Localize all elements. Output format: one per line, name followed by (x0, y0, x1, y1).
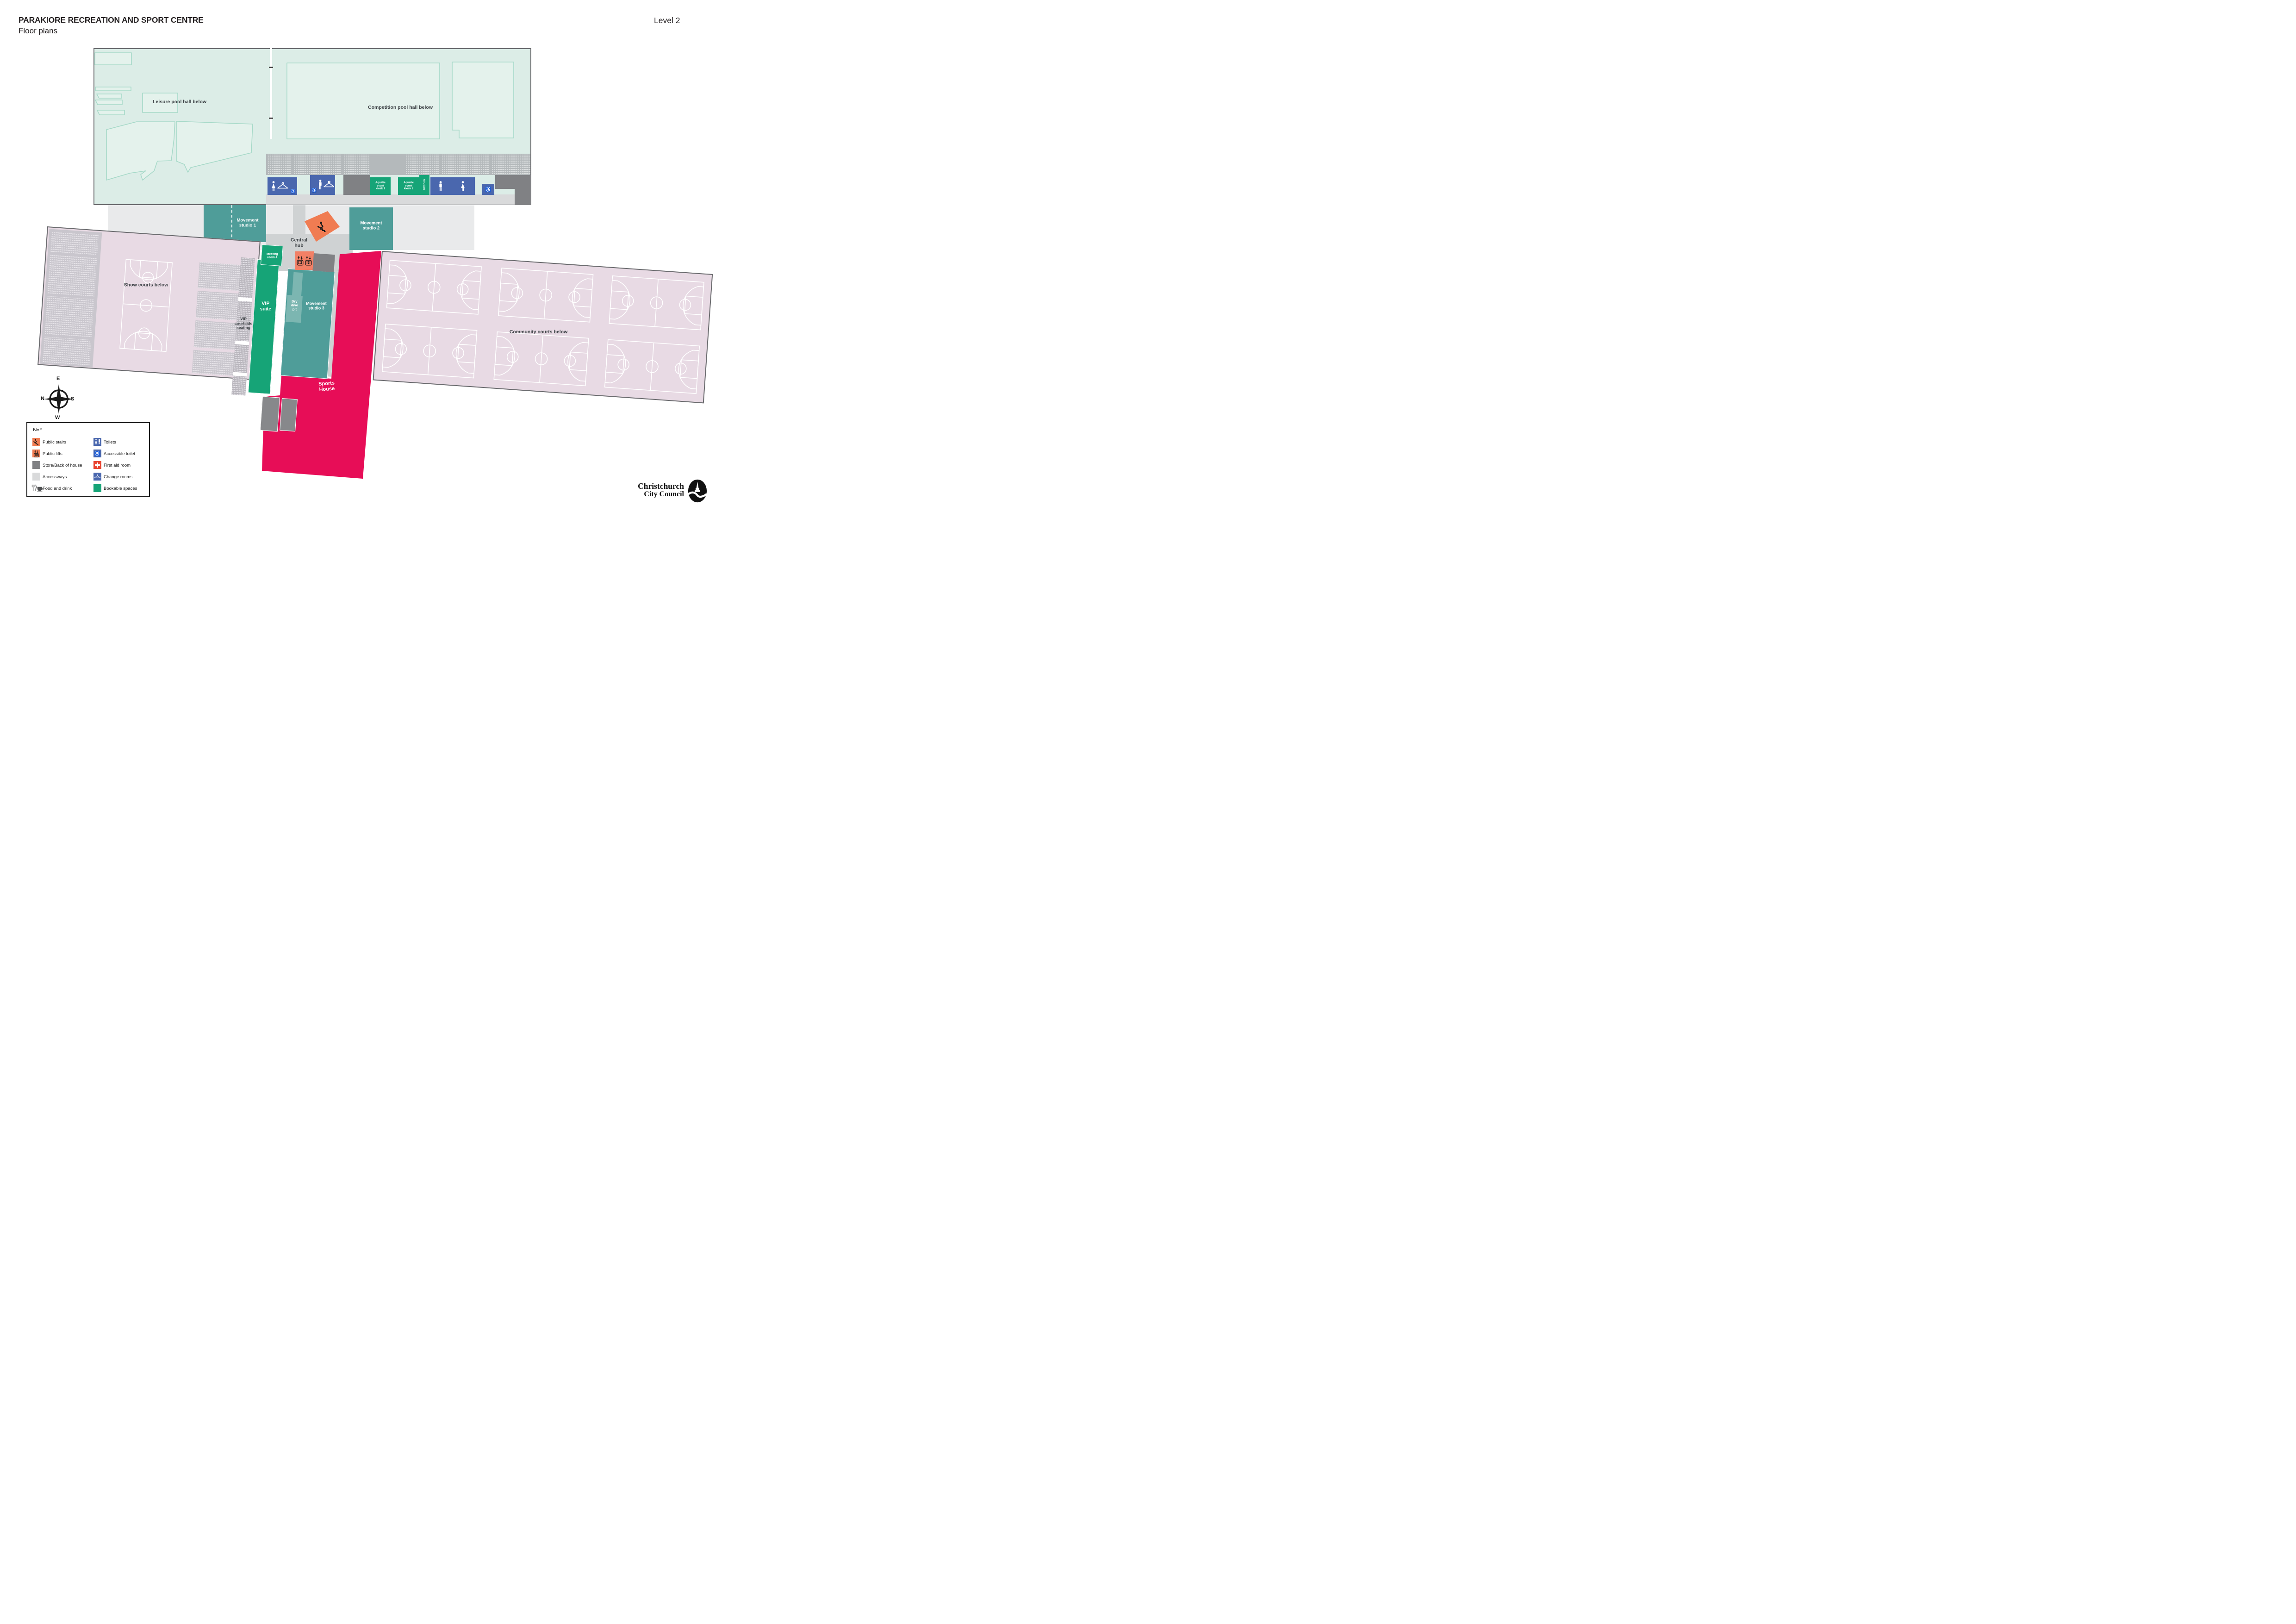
key-label-accessible-toilet: Accessible toilet (104, 451, 135, 456)
store-block (343, 175, 370, 195)
key-label-accessways: Accessways (43, 475, 67, 480)
tribune-seating (343, 155, 369, 174)
key-label-public-lifts: Public lifts (43, 451, 62, 456)
page-title: PARAKIORE RECREATION AND SPORT CENTRE (19, 15, 204, 25)
male-icon (438, 181, 443, 191)
compass-e: E (56, 376, 60, 381)
wheelchair-icon: ♿ (485, 187, 492, 193)
accessible-toilet-icon: ♿ (93, 450, 101, 457)
kitchen-label: Kitchen (423, 179, 426, 190)
meeting-room-4-label: Meeting room 4 (267, 252, 278, 259)
kiosk2-label: Aquatic event kiosk 2 (404, 181, 414, 191)
wheelchair-icon: ♿ (291, 189, 296, 194)
grandstand-seating (198, 262, 243, 291)
movement-studio-3: Dry dive pit Movement studio 3 (280, 269, 335, 379)
dry-dive-pit (286, 295, 303, 323)
key-legend: KEY Public stairs Public lifts Store/Bac… (26, 422, 150, 497)
lift-icon (297, 256, 304, 266)
aisle-gap (233, 372, 247, 376)
key-label-first-aid: First aid room (104, 463, 131, 468)
grandstand-seating (47, 255, 97, 297)
level-label: Level 2 (654, 16, 680, 25)
compass-n: N (41, 396, 44, 401)
aquatic-event-kiosk-2: Aquatic event kiosk 2 (398, 177, 419, 195)
change-rooms-male: ♿ (310, 175, 335, 195)
female-icon (271, 181, 276, 191)
key-title: KEY (33, 427, 43, 432)
tribune-seating (442, 155, 489, 174)
vip-suite-label: VIP suite (260, 301, 272, 312)
concourse-walkway (266, 194, 530, 205)
public-stairs-icon (32, 438, 40, 446)
compass-w: W (55, 415, 60, 420)
aisle-gap (238, 297, 252, 302)
kitchen-block: Kitchen (419, 175, 429, 195)
hub-corridor (293, 205, 305, 236)
change-rooms-icon (93, 473, 101, 481)
grandstand-seating (50, 231, 99, 255)
store-icon (32, 461, 40, 469)
store-block (260, 396, 280, 431)
toilets-icon (93, 438, 101, 446)
logo-text-2: City Council (591, 491, 684, 498)
store-block (515, 187, 531, 205)
key-label-bookable: Bookable spaces (104, 486, 137, 491)
accessways-icon (32, 473, 40, 481)
logo-text-1: Christchurch (591, 482, 684, 491)
key-label-change-rooms: Change rooms (104, 475, 132, 480)
tribune-seating (492, 155, 530, 174)
change-rooms-female: ♿ (268, 177, 297, 195)
hanger-icon (323, 181, 334, 187)
compass-rose: E N S W (39, 380, 78, 418)
studio-divider-dashed (231, 205, 232, 242)
hanger-icon (277, 182, 289, 189)
accessible-toilet-block: ♿ (482, 184, 494, 195)
movement-studio-2-label: Movement studio 2 (361, 221, 382, 231)
food-and-drink-icon (31, 484, 43, 492)
bookable-spaces-icon (93, 484, 101, 492)
vip-courtside-label: VIP courtside seating (235, 317, 252, 330)
key-label-toilets: Toilets (104, 440, 116, 445)
tribune-seating (268, 155, 291, 174)
key-label-store: Store/Back of house (43, 463, 82, 468)
grandstand-seating (44, 296, 94, 337)
aquatic-event-kiosk-1: Aquatic event kiosk 1 (370, 177, 391, 195)
aisle-gap (235, 341, 249, 345)
stairs-icon (317, 221, 328, 232)
dry-dive-pit (292, 272, 303, 297)
hall-divider (270, 48, 272, 139)
male-icon (317, 180, 323, 190)
show-court-lines (119, 254, 173, 357)
female-icon (460, 181, 466, 191)
grandstand-seating (192, 350, 236, 376)
sports-house-label: Sports House (318, 381, 335, 393)
movement-studio-3-label: Movement studio 3 (306, 301, 327, 310)
grandstand-seating (194, 320, 238, 350)
grandstand-seating (43, 337, 92, 365)
movement-studio-1-label: Movement studio 1 (237, 218, 259, 228)
store-block (280, 398, 298, 431)
movement-studio-2: Movement studio 2 (349, 207, 393, 250)
grandstand-seating (196, 291, 240, 320)
wheelchair-icon: ♿ (311, 188, 317, 193)
movement-studio-1: Movement studio 1 (204, 205, 266, 242)
public-lifts-icon (32, 450, 40, 457)
key-label-food: Food and drink (43, 486, 72, 491)
community-courts-building: Community courts below (373, 251, 713, 403)
meeting-room-4: Meeting room 4 (261, 244, 283, 266)
lift-icon (305, 256, 312, 266)
page-subtitle: Floor plans (19, 26, 57, 36)
first-aid-icon (93, 461, 101, 469)
floor-plan-page: PARAKIORE RECREATION AND SPORT CENTRE Fl… (0, 0, 726, 513)
show-courts-building: Show courts below (37, 226, 261, 380)
tribune-seating (405, 155, 439, 174)
store-block (312, 253, 335, 272)
public-lifts-block (295, 251, 314, 270)
tribune-seating (293, 155, 341, 174)
toilets-block (430, 177, 475, 195)
ccc-logo-icon (688, 478, 707, 504)
compass-s: S (71, 396, 74, 402)
community-courts-lines (374, 252, 712, 402)
key-label-public-stairs: Public stairs (43, 440, 66, 445)
kiosk1-label: Aquatic event kiosk 1 (375, 181, 386, 191)
